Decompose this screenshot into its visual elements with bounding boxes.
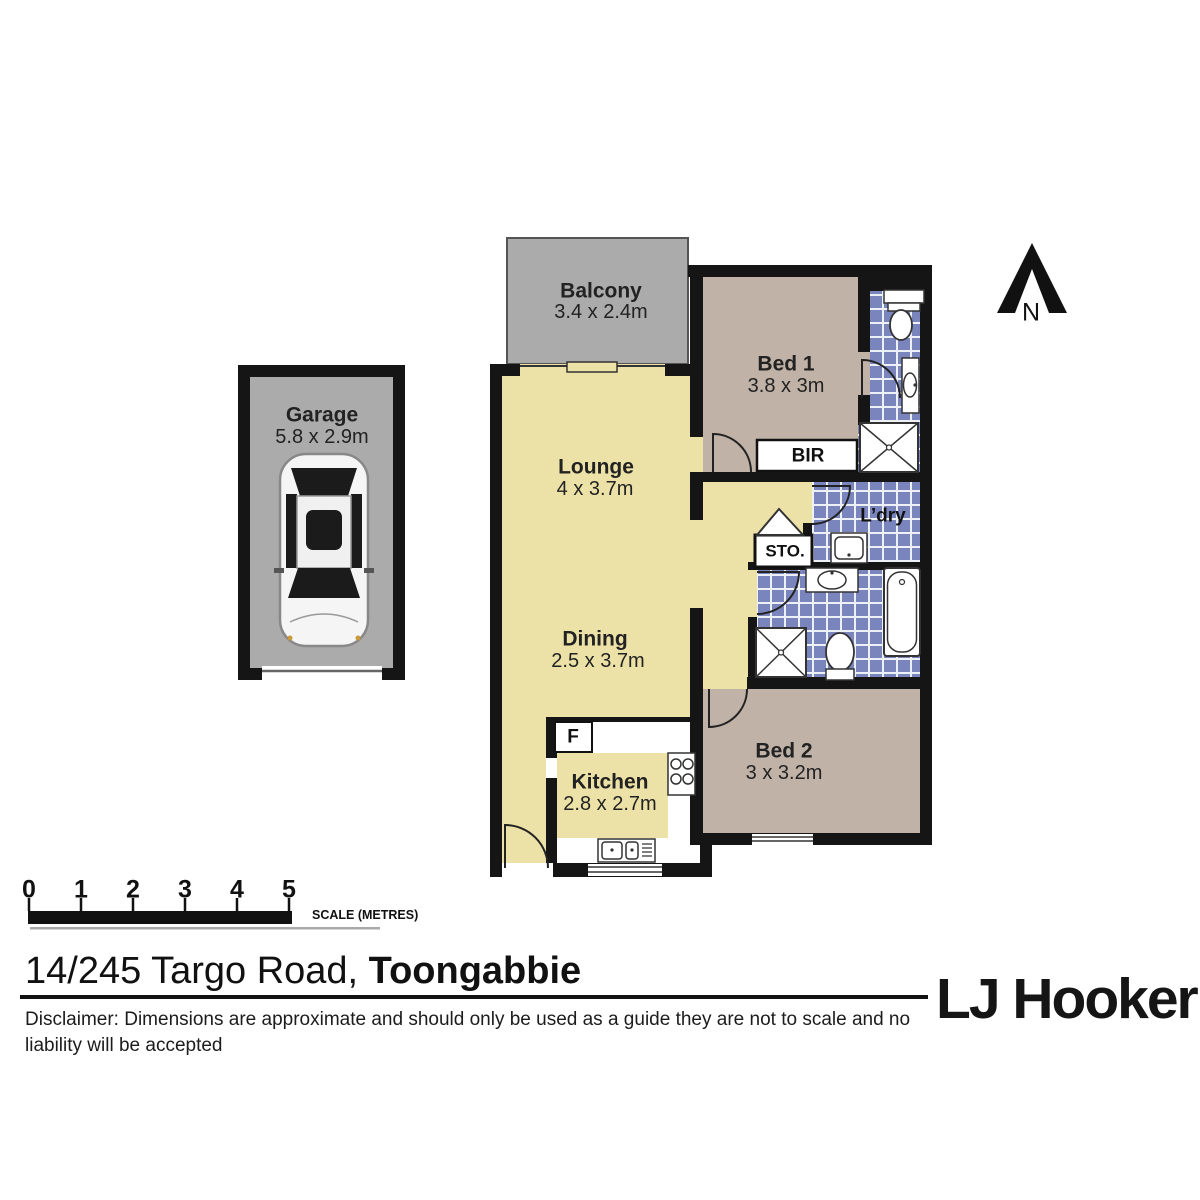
sliding-door-panel bbox=[567, 362, 617, 372]
scale-underline bbox=[30, 927, 380, 930]
dining-dims: 2.5 x 3.7m bbox=[551, 651, 644, 671]
wall-kitchen-left-b bbox=[546, 778, 557, 863]
laundry-doorway bbox=[803, 482, 812, 523]
scale-tick-3: 3 bbox=[178, 878, 192, 903]
address-suburb: Toongabbie bbox=[369, 950, 582, 992]
address-title: 14/245 Targo Road, Toongabbie bbox=[25, 950, 581, 993]
lounge-hall-opening bbox=[690, 520, 703, 608]
garage-dims: 5.8 x 2.9m bbox=[275, 427, 368, 447]
balcony-dims: 3.4 x 2.4m bbox=[554, 302, 647, 322]
floorplan-canvas: Balcony 3.4 x 2.4m Bed 1 3.8 x 3m Garage… bbox=[0, 0, 1200, 1200]
garage-wall-right bbox=[393, 365, 405, 680]
dining-label: Dining bbox=[562, 629, 627, 650]
bed2-label: Bed 2 bbox=[755, 741, 812, 762]
bed1-dims: 3.8 x 3m bbox=[748, 376, 825, 396]
car-top-view bbox=[274, 454, 374, 646]
address-prefix: 14/245 Targo Road, bbox=[25, 950, 369, 992]
laundry-label: L’dry bbox=[860, 507, 905, 526]
scale-caption: SCALE (METRES) bbox=[312, 908, 418, 922]
bathroom-toilet-bowl bbox=[826, 633, 854, 671]
kitchen-dims: 2.8 x 2.7m bbox=[563, 794, 656, 814]
car-windshield bbox=[288, 568, 360, 598]
garage-wall-left bbox=[238, 365, 250, 680]
disclaimer-text: Disclaimer: Dimensions are approximate a… bbox=[25, 1007, 935, 1059]
scale-tick-4: 4 bbox=[230, 878, 244, 903]
wall-bed1-bottom bbox=[690, 472, 932, 482]
car-mirror-left bbox=[274, 568, 284, 573]
hall-lower-floor bbox=[703, 562, 748, 689]
garage-wall-top bbox=[238, 365, 405, 377]
bed1-label: Bed 1 bbox=[757, 354, 814, 375]
fridge-label: F bbox=[567, 728, 579, 747]
bed1-doorway bbox=[690, 437, 703, 472]
wall-lounge-hall-b bbox=[690, 472, 703, 520]
kitchen-label: Kitchen bbox=[571, 772, 648, 793]
car-rear-window bbox=[291, 468, 357, 496]
scale-tick-0: 0 bbox=[22, 878, 36, 903]
kitchen-window bbox=[588, 864, 662, 876]
wall-left bbox=[490, 364, 502, 877]
ensuite-doorway bbox=[858, 352, 870, 395]
garage-wall-bottom-right bbox=[382, 668, 405, 680]
bathroom-doorway bbox=[748, 570, 757, 617]
ensuite-toilet-cistern bbox=[884, 290, 924, 303]
wall-ensuite-left-b bbox=[858, 395, 870, 425]
bed2-dims: 3 x 3.2m bbox=[746, 763, 823, 783]
scale-bar bbox=[28, 911, 292, 924]
car-mirror-right bbox=[364, 568, 374, 573]
garage-door-opening bbox=[262, 666, 382, 679]
ljhooker-logo: LJ Hooker bbox=[936, 966, 1197, 1032]
garage-wall-bottom-left bbox=[238, 668, 262, 680]
scale-tick-5: 5 bbox=[282, 878, 296, 903]
car-sunroof bbox=[306, 510, 342, 550]
storage-label: STO. bbox=[765, 543, 804, 560]
bed2-window bbox=[752, 834, 813, 845]
wall-right bbox=[920, 265, 932, 845]
wall-dining-hall-c bbox=[690, 608, 703, 845]
scale-tick-1: 1 bbox=[74, 878, 88, 903]
ensuite-toilet-bowl bbox=[890, 310, 912, 340]
scale-tick-2: 2 bbox=[126, 878, 140, 903]
wall-bed2-bottom bbox=[700, 833, 932, 845]
wall-ensuite-left-a bbox=[858, 277, 870, 352]
title-divider bbox=[20, 995, 928, 999]
bathroom-toilet-base bbox=[826, 669, 854, 680]
bir-label: BIR bbox=[792, 447, 825, 466]
garage-label: Garage bbox=[286, 405, 358, 426]
balcony-label: Balcony bbox=[560, 281, 642, 302]
lounge-label: Lounge bbox=[558, 457, 634, 478]
north-label: N bbox=[1022, 301, 1040, 326]
wall-lounge-bed1-a bbox=[690, 265, 703, 437]
lounge-dims: 4 x 3.7m bbox=[557, 479, 634, 499]
wall-balcony-stub-left bbox=[490, 364, 520, 376]
scale-ticks bbox=[29, 898, 289, 911]
